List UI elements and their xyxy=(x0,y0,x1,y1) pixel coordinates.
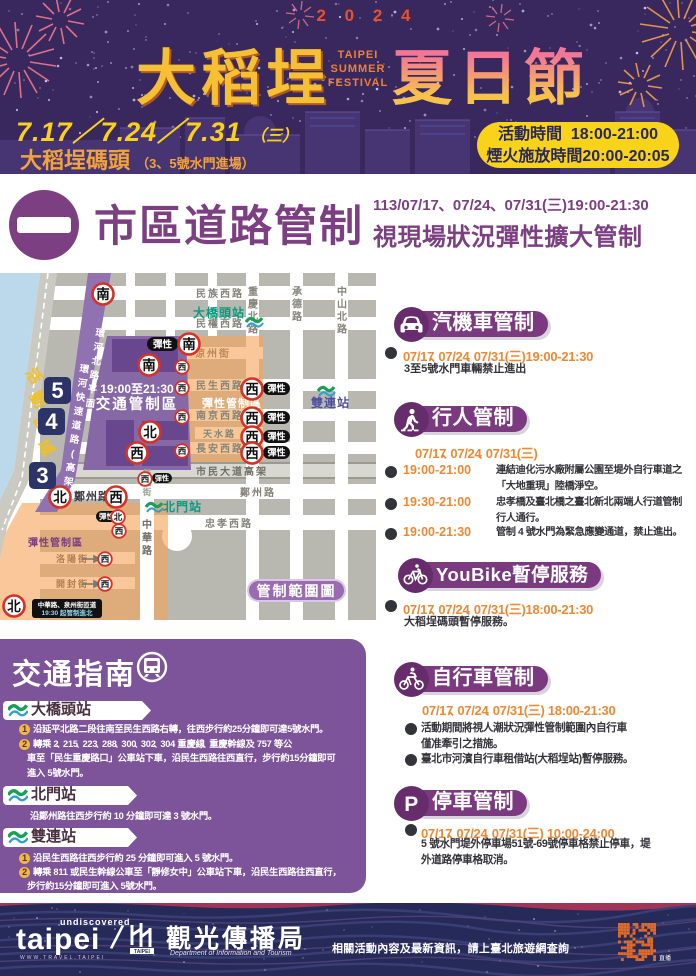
svg-text:西: 西 xyxy=(245,446,259,461)
svg-text:西: 西 xyxy=(101,554,110,564)
svg-text:天水路: 天水路 xyxy=(203,428,236,439)
svg-text:承德路: 承德路 xyxy=(291,286,303,323)
svg-text:中華路、泉州街匝道: 中華路、泉州街匝道 xyxy=(38,600,97,609)
svg-text:彈性: 彈性 xyxy=(267,412,285,423)
svg-text:忠孝西路: 忠孝西路 xyxy=(205,517,253,530)
svg-text:管制範圍圖: 管制範圍圖 xyxy=(257,583,337,599)
svg-text:19:00至21:30: 19:00至21:30 xyxy=(100,382,174,396)
svg-text:南京西路: 南京西路 xyxy=(196,409,244,422)
svg-text:雙連站: 雙連站 xyxy=(311,395,350,410)
svg-text:北門站: 北門站 xyxy=(163,499,202,514)
svg-text:北: 北 xyxy=(143,425,157,440)
svg-text:西: 西 xyxy=(245,411,259,426)
svg-text:西: 西 xyxy=(245,382,259,397)
svg-text:交通管制區: 交通管制區 xyxy=(96,395,179,413)
svg-text:北: 北 xyxy=(7,599,21,614)
svg-text:5: 5 xyxy=(51,378,63,403)
svg-text:中山北路: 中山北路 xyxy=(337,285,348,336)
svg-text:彈性: 彈性 xyxy=(267,383,285,394)
svg-text:彈性管制區: 彈性管制區 xyxy=(28,536,83,549)
svg-text:彈性: 彈性 xyxy=(155,474,169,483)
svg-text:北: 北 xyxy=(53,490,67,505)
svg-text:南: 南 xyxy=(142,357,156,373)
svg-text:西: 西 xyxy=(178,362,187,372)
svg-text:彈性: 彈性 xyxy=(153,338,173,350)
svg-text:民族西路: 民族西路 xyxy=(196,287,244,300)
svg-text:西: 西 xyxy=(115,526,124,536)
svg-text:TAIPEI: TAIPEI xyxy=(134,949,150,955)
svg-text:涼州街: 涼州街 xyxy=(195,347,231,360)
svg-text:彈性: 彈性 xyxy=(267,447,285,458)
svg-text:3: 3 xyxy=(36,463,48,488)
svg-text:西: 西 xyxy=(141,474,150,484)
svg-text:彈性: 彈性 xyxy=(267,431,285,442)
svg-text:市民大道高架: 市民大道高架 xyxy=(196,465,268,478)
svg-text:P: P xyxy=(404,793,419,816)
svg-text:西: 西 xyxy=(178,383,187,393)
svg-text:西: 西 xyxy=(178,446,187,456)
svg-text:西: 西 xyxy=(109,490,123,505)
svg-text:19:30 起管制進北: 19:30 起管制進北 xyxy=(42,608,93,617)
svg-text:鄭州路: 鄭州路 xyxy=(239,486,276,499)
svg-text:北: 北 xyxy=(114,512,123,522)
svg-text:重慶北路: 重慶北路 xyxy=(248,285,259,336)
svg-text:西: 西 xyxy=(178,412,187,422)
svg-text:長安西路: 長安西路 xyxy=(196,442,244,455)
svg-text:4: 4 xyxy=(45,409,58,434)
svg-text:大橋頭站: 大橋頭站 xyxy=(193,305,245,320)
svg-text:南: 南 xyxy=(96,286,110,302)
svg-text:西: 西 xyxy=(101,579,110,589)
svg-text:西: 西 xyxy=(130,446,144,461)
svg-text:民生西路: 民生西路 xyxy=(196,379,244,392)
svg-text:南: 南 xyxy=(182,336,196,352)
svg-text:中華路: 中華路 xyxy=(142,518,153,557)
